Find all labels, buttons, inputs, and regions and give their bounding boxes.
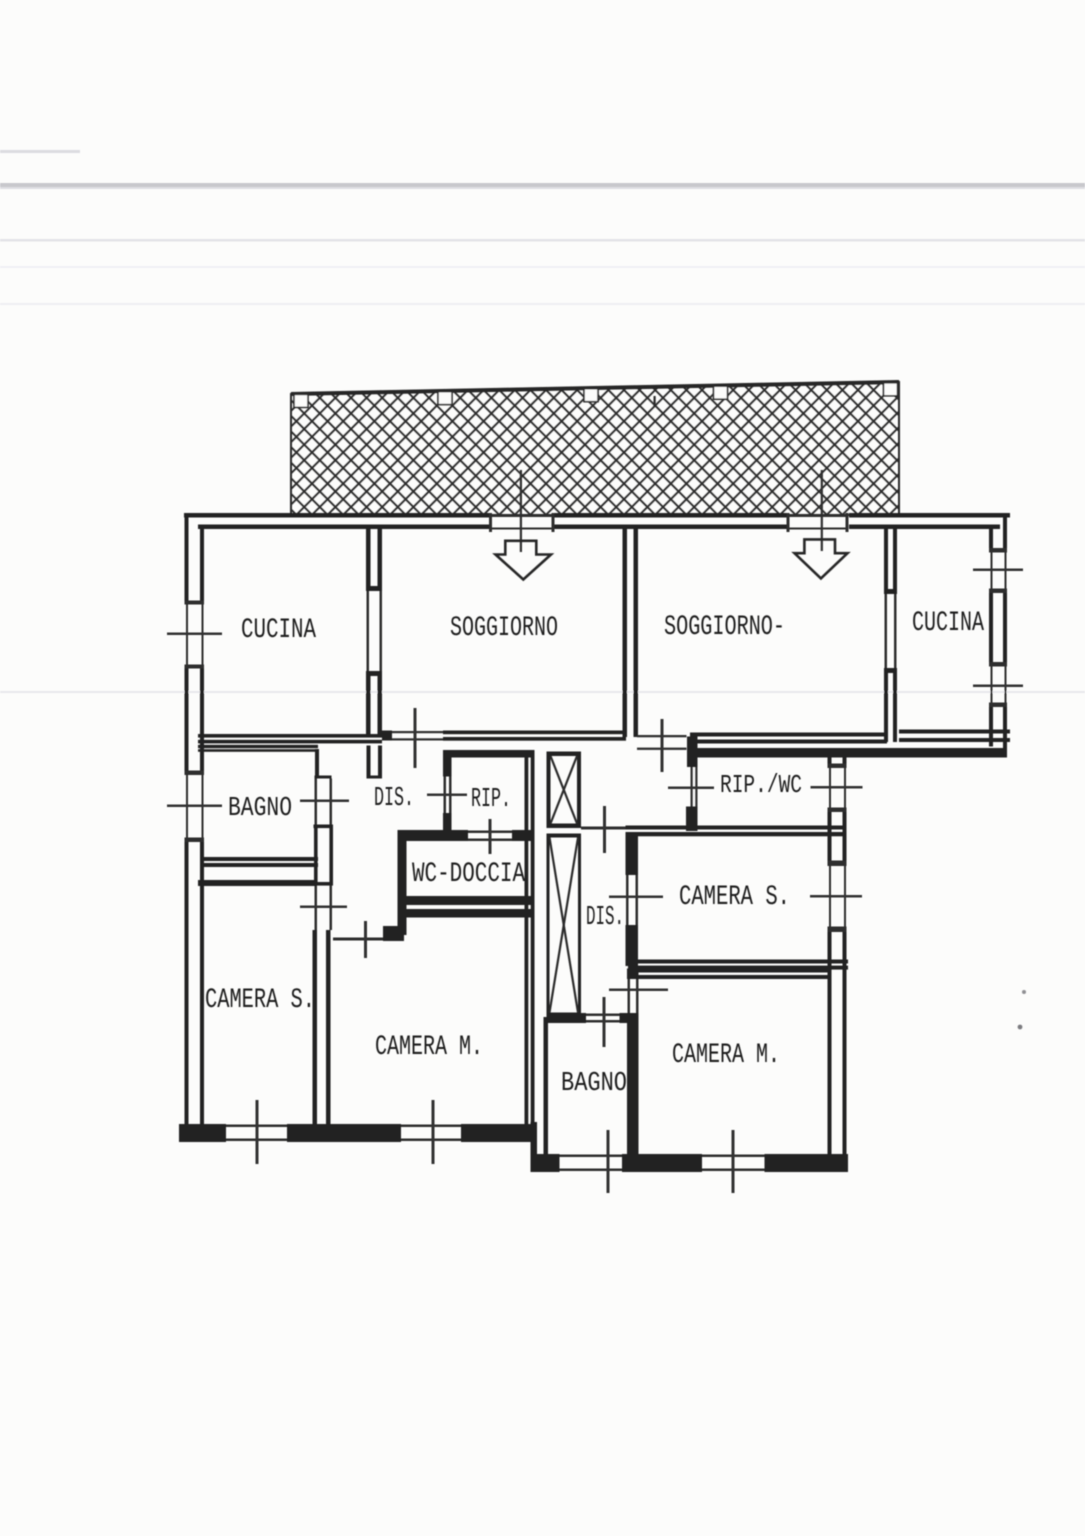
svg-text:RIP.: RIP. (471, 785, 511, 815)
svg-text:DIS.: DIS. (586, 903, 624, 933)
svg-text:CAMERA M.: CAMERA M. (672, 1040, 780, 1071)
svg-text:BAGNO: BAGNO (228, 794, 292, 824)
svg-text:DIS.: DIS. (374, 784, 414, 814)
svg-text:SOGGIORNO-: SOGGIORNO- (664, 612, 785, 643)
svg-text:RIP./WC: RIP./WC (720, 770, 802, 800)
svg-text:BAGNO: BAGNO (561, 1069, 627, 1099)
svg-text:CAMERA M.: CAMERA M. (375, 1032, 483, 1063)
svg-text:CAMERA S.: CAMERA S. (205, 985, 315, 1016)
svg-text:WC-DOCCIA: WC-DOCCIA (412, 859, 525, 890)
svg-text:CAMERA S.: CAMERA S. (679, 882, 790, 913)
svg-text:CUCINA: CUCINA (241, 615, 316, 646)
svg-text:SOGGIORNO: SOGGIORNO (450, 613, 558, 644)
svg-text:CUCINA: CUCINA (912, 608, 984, 639)
